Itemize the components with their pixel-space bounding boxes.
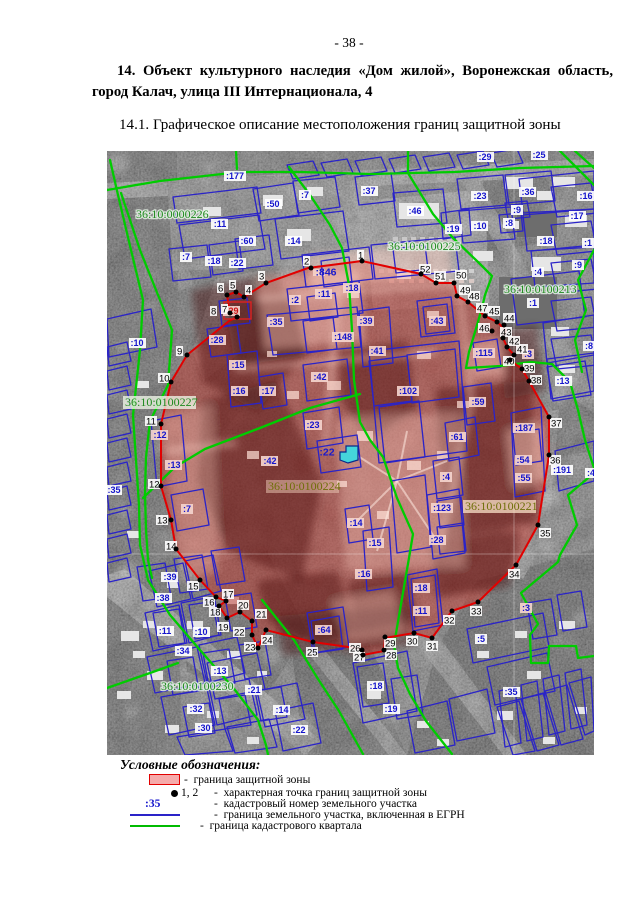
svg-text::59: :59 [471,397,484,407]
svg-text:32: 32 [444,616,455,627]
svg-text:36:10:0100213: 36:10:0100213 [504,282,577,296]
svg-text::42: :42 [313,372,326,382]
svg-text::28: :28 [430,535,443,545]
svg-text::35: :35 [107,485,120,495]
svg-text:36:10:0000226: 36:10:0000226 [136,207,209,221]
svg-text:21: 21 [256,610,267,621]
svg-text::55: :55 [517,473,530,483]
svg-text:7: 7 [222,305,227,316]
svg-text:25: 25 [307,648,318,659]
svg-text::4: :4 [534,267,542,277]
svg-text::22: :22 [230,258,243,268]
svg-text::9: :9 [574,260,582,270]
svg-text::11: :11 [415,606,428,616]
svg-text::177: :177 [226,171,244,181]
svg-text:36:10:0100224: 36:10:0100224 [268,479,341,493]
svg-text:33: 33 [471,607,482,618]
svg-text:9: 9 [177,347,182,358]
svg-text::17: :17 [261,386,274,396]
svg-text:8: 8 [211,307,216,318]
svg-text::191: :191 [553,465,571,475]
svg-text::11: :11 [214,219,227,229]
svg-text:36:10:0100227: 36:10:0100227 [125,395,198,409]
svg-text:46: 46 [479,324,490,335]
svg-text:15: 15 [188,582,199,593]
svg-text::60: :60 [240,236,253,246]
svg-text::17: :17 [570,211,583,221]
svg-text:37: 37 [551,419,562,430]
svg-text:18: 18 [210,608,221,619]
svg-text:24: 24 [262,636,273,647]
svg-text::15: :15 [368,538,381,548]
svg-text::34: :34 [176,646,189,656]
svg-text::11: :11 [318,289,331,299]
svg-text::115: :115 [475,348,493,358]
svg-text::10: :10 [473,221,486,231]
svg-text::37: :37 [362,186,375,196]
svg-text::54: :54 [516,455,529,465]
svg-text::61: :61 [450,432,463,442]
svg-text::16: :16 [579,191,592,201]
svg-text::38: :38 [156,593,169,603]
svg-text:49: 49 [460,286,471,297]
svg-text::25: :25 [532,151,545,160]
svg-text:30: 30 [407,637,418,648]
svg-text::23: :23 [473,191,486,201]
svg-text:50: 50 [456,271,467,282]
svg-text::846: :846 [315,267,336,279]
svg-text::12: :12 [153,430,166,440]
svg-text::18: :18 [414,583,427,593]
svg-text:47: 47 [477,304,488,315]
svg-text::39: :39 [359,316,372,326]
svg-text:36:10:0100230: 36:10:0100230 [161,679,234,693]
svg-text::123: :123 [433,503,451,513]
svg-text::18: :18 [345,283,358,293]
svg-text:44: 44 [504,314,515,325]
svg-text::9: :9 [513,205,521,215]
svg-text:17: 17 [223,590,234,601]
svg-text::102: :102 [399,386,417,396]
svg-text::10: :10 [130,338,143,348]
svg-text::29: :29 [478,152,491,162]
svg-text::11: :11 [159,626,172,636]
svg-text::2: :2 [291,295,299,305]
svg-text:29: 29 [385,639,396,650]
svg-text::16: :16 [232,386,245,396]
svg-text::46: :46 [408,206,421,216]
svg-text::43: :43 [430,316,443,326]
svg-text::50: :50 [266,199,279,209]
svg-text:12: 12 [149,480,160,491]
svg-text::32: :32 [189,704,202,714]
svg-text::4: :4 [442,472,450,482]
svg-text::42: :42 [263,456,276,466]
svg-text::39: :39 [163,572,176,582]
svg-text:38: 38 [531,376,542,387]
svg-text::16: :16 [357,569,370,579]
svg-text:34: 34 [509,570,520,581]
svg-text:11: 11 [146,417,156,428]
svg-text:19: 19 [218,623,229,634]
svg-text::1: :1 [584,238,592,248]
svg-text:13: 13 [157,516,168,527]
svg-text::1: :1 [529,298,537,308]
svg-text:5: 5 [230,281,235,292]
svg-text:36:10:0100221: 36:10:0100221 [465,499,538,513]
svg-text:39: 39 [524,364,535,375]
svg-text::19: :19 [384,704,397,714]
svg-text::7: :7 [301,190,309,200]
svg-text::35: :35 [269,317,282,327]
svg-text::4: :4 [587,468,594,478]
svg-text::22: :22 [292,725,305,735]
svg-text:36: 36 [550,456,561,467]
svg-text::22: :22 [319,447,334,459]
svg-text::14: :14 [349,518,362,528]
svg-text::18: :18 [539,236,552,246]
svg-text:45: 45 [489,307,500,318]
svg-text::8: :8 [585,341,593,351]
svg-text::35: :35 [504,687,517,697]
svg-text::41: :41 [370,346,383,356]
svg-text::13: :13 [556,376,569,386]
svg-text:22: 22 [234,628,245,639]
svg-text::148: :148 [334,332,352,342]
svg-text::7: :7 [183,504,191,514]
svg-text:23: 23 [245,643,256,654]
svg-text::10: :10 [194,627,207,637]
svg-text:10: 10 [159,374,170,385]
svg-text::23: :23 [306,420,319,430]
svg-text:35: 35 [540,529,551,540]
svg-text::13: :13 [167,460,180,470]
svg-text::30: :30 [197,723,210,733]
svg-text::14: :14 [287,236,300,246]
svg-text:28: 28 [386,651,397,662]
svg-text::19: :19 [446,224,459,234]
svg-text::7: :7 [182,252,190,262]
svg-text:36:10:0100225: 36:10:0100225 [388,239,461,253]
svg-text::18: :18 [369,681,382,691]
svg-text::36: :36 [521,187,534,197]
svg-text:3: 3 [259,272,264,283]
svg-text:31: 31 [427,642,438,653]
svg-text::18: :18 [207,256,220,266]
svg-text:4: 4 [246,286,251,297]
svg-text::13: :13 [213,666,226,676]
svg-text::187: :187 [515,423,533,433]
svg-text:2: 2 [304,257,309,268]
svg-text::14: :14 [275,705,288,715]
svg-text::3: :3 [522,603,530,613]
svg-text::64: :64 [317,625,330,635]
svg-text::21: :21 [247,685,260,695]
svg-text::28: :28 [210,335,223,345]
svg-text:6: 6 [218,284,223,295]
svg-text::5: :5 [477,634,485,644]
svg-text::15: :15 [231,360,244,370]
svg-text::8: :8 [505,218,513,228]
